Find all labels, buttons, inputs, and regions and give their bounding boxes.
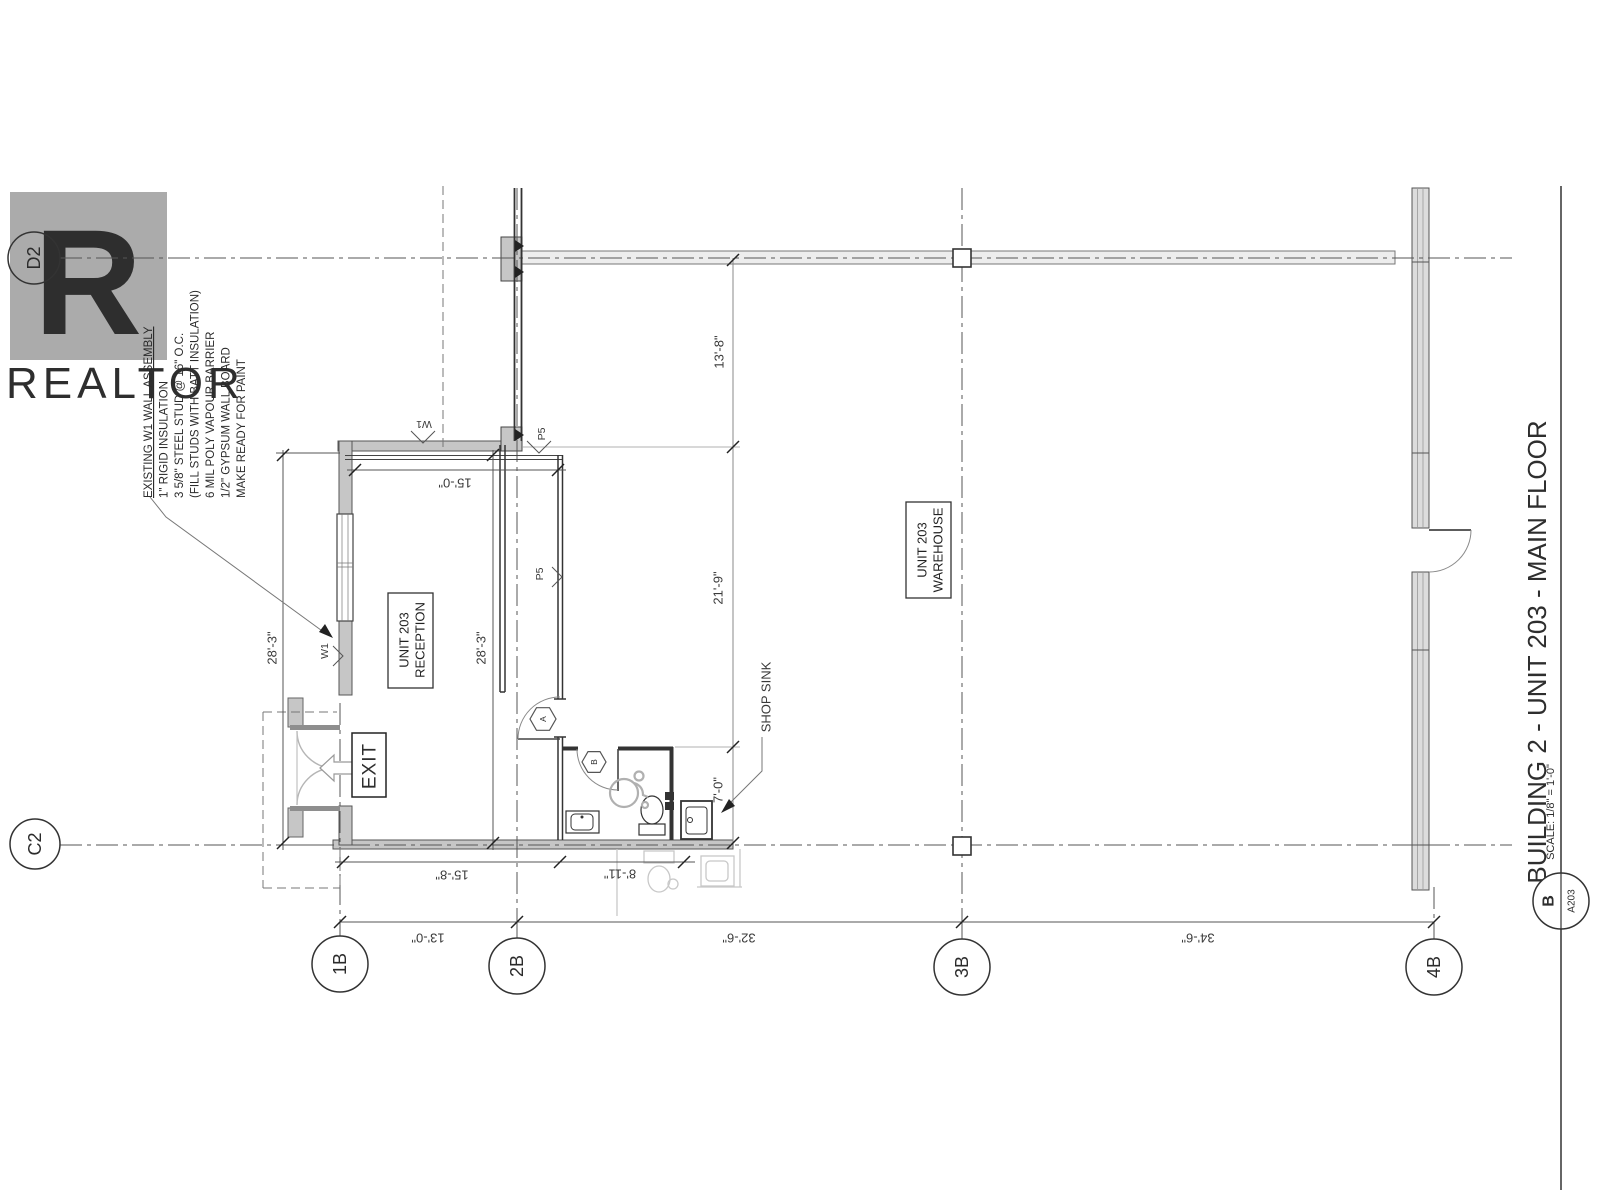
west-wall-lower xyxy=(339,806,352,845)
shop-sink-label: SHOP SINK xyxy=(759,661,774,732)
grid-bubble-2b-label: 2B xyxy=(507,955,527,977)
column-marker-3b-c2 xyxy=(953,837,971,855)
entry-jamb-south xyxy=(290,806,340,811)
grid-lines xyxy=(60,188,1512,935)
wall-tag-w1-top: W1 xyxy=(416,418,432,430)
grid-bubbles: D2 C2 1B 2B 3B 4B xyxy=(8,232,1462,995)
wall-tag-w1-left: W1 xyxy=(319,643,331,659)
doors xyxy=(297,530,1471,805)
sink-drain-icon xyxy=(581,816,584,819)
dimension-lines xyxy=(276,450,1434,939)
realtor-logo-letter: R xyxy=(34,198,142,366)
dim-grid-1b-2b: 13'-0" xyxy=(411,931,445,946)
east-wall-lower xyxy=(1412,572,1429,890)
extension-lines xyxy=(522,447,740,747)
east-door-arc xyxy=(1429,530,1471,572)
column-marker-3b-d2 xyxy=(953,249,971,267)
bubble-connectors xyxy=(340,922,1434,939)
note-line: 1" RIGID INSULATION xyxy=(159,381,171,498)
grid-bubble-c2-label: C2 xyxy=(25,832,45,855)
dim-north-bay: 13'-8" xyxy=(712,335,727,369)
west-wall-upper xyxy=(339,441,352,520)
entry-jamb-north xyxy=(290,725,340,730)
dim-reception-width: 15'-0" xyxy=(438,476,472,491)
warehouse-label-line1: UNIT 203 xyxy=(915,522,930,577)
window xyxy=(337,514,353,621)
west-wall-mid xyxy=(339,618,352,695)
dim-grid-2b-3b: 32'-6" xyxy=(722,931,756,946)
ghost-toilet-tank xyxy=(644,851,674,863)
exit-sign-label: EXIT xyxy=(360,743,381,789)
grid-bubble-3b-label: 3B xyxy=(952,956,972,978)
note-line: (FILL STUDS WITH BATT INSULATION) xyxy=(190,290,202,498)
fixtures xyxy=(566,772,712,840)
toilet-bowl-icon xyxy=(641,796,663,824)
reception-north-wall xyxy=(338,441,502,451)
drawing-scale: SCALE: 1/8" = 1'-0" xyxy=(1545,764,1557,860)
dim-bottom-left: 15'-8" xyxy=(435,868,469,883)
reception-label-line2: RECEPTION xyxy=(413,602,428,678)
floor-plan-page: R REALTOR xyxy=(0,0,1600,1200)
column-2b-south xyxy=(501,427,522,451)
exterior-walls xyxy=(288,188,1429,890)
detail-letter: B xyxy=(1541,895,1558,907)
note-leader-line xyxy=(150,497,325,633)
wall-tag-p5-top: P5 xyxy=(536,427,548,440)
warehouse-label-line2: WAREHOUSE xyxy=(931,507,946,592)
shop-sink-icon xyxy=(681,801,712,839)
toilet-tank-icon xyxy=(639,824,665,835)
note-leader-arrowhead xyxy=(319,624,333,638)
ghost-sink-basin xyxy=(706,861,728,881)
reception-east-wall xyxy=(500,445,505,692)
room-labels: UNIT 203 RECEPTION UNIT 203 WAREHOUSE EX… xyxy=(320,502,951,797)
door-tags: A B xyxy=(530,708,606,773)
sheet-number: A203 xyxy=(1567,889,1578,913)
door-tag-b-label: B xyxy=(589,759,599,765)
note-line: 6 MIL POLY VAPOUR BARRIER xyxy=(205,332,217,498)
wall-assembly-note: EXISTING W1 WALL ASSEMBLY 1" RIGID INSUL… xyxy=(143,290,333,638)
dimension-ticks xyxy=(277,254,1440,928)
shop-sink-callout: SHOP SINK xyxy=(721,661,774,813)
dim-reception-height-left: 28'-3" xyxy=(265,631,280,665)
ghost-toilet-bowl xyxy=(648,866,670,892)
dim-reception-height-mid: 28'-3" xyxy=(474,631,489,665)
floor-plan-drawing: R REALTOR xyxy=(0,0,1600,1200)
grid-bubble-d2-label: D2 xyxy=(24,246,44,269)
wall-tag-p5-mid: P5 xyxy=(534,567,546,580)
dim-bottom-mid: 8'-11" xyxy=(604,867,637,882)
east-wall-upper xyxy=(1412,188,1429,528)
door-tag-a-label: A xyxy=(538,716,548,722)
wall-tag-chevron xyxy=(552,567,562,587)
ghosted-adjacent-fixtures xyxy=(617,849,742,916)
grid-bubble-1b-label: 1B xyxy=(330,953,350,975)
note-line: 3 5/8" STEEL STUD @ 16" O.C. xyxy=(174,333,186,498)
hall-east-wall xyxy=(554,455,566,840)
grid-bubble-4b-label: 4B xyxy=(1424,956,1444,978)
dim-south-bay: 7'-0" xyxy=(711,777,726,803)
reception-label-line1: UNIT 203 xyxy=(397,612,412,667)
note-title: EXISTING W1 WALL ASSEMBLY xyxy=(143,326,155,498)
ghost-walls xyxy=(617,849,742,916)
reception-north-face xyxy=(345,456,563,460)
grab-bar-icon xyxy=(665,802,674,810)
dim-mid-bay: 21'-9" xyxy=(711,571,726,605)
demising-wall-2b xyxy=(515,188,522,441)
grab-bar-icon xyxy=(665,792,674,800)
title-block: BUILDING 2 - UNIT 203 - MAIN FLOOR SCALE… xyxy=(1522,186,1589,1190)
entry-pier-south xyxy=(288,808,303,837)
note-line: MAKE READY FOR PAINT xyxy=(236,359,248,498)
note-line: 1/2" GYPSUM WALL BOARD xyxy=(221,347,233,498)
dim-grid-3b-4b: 34'-6" xyxy=(1181,931,1215,946)
entry-canopy-outline xyxy=(263,712,340,888)
